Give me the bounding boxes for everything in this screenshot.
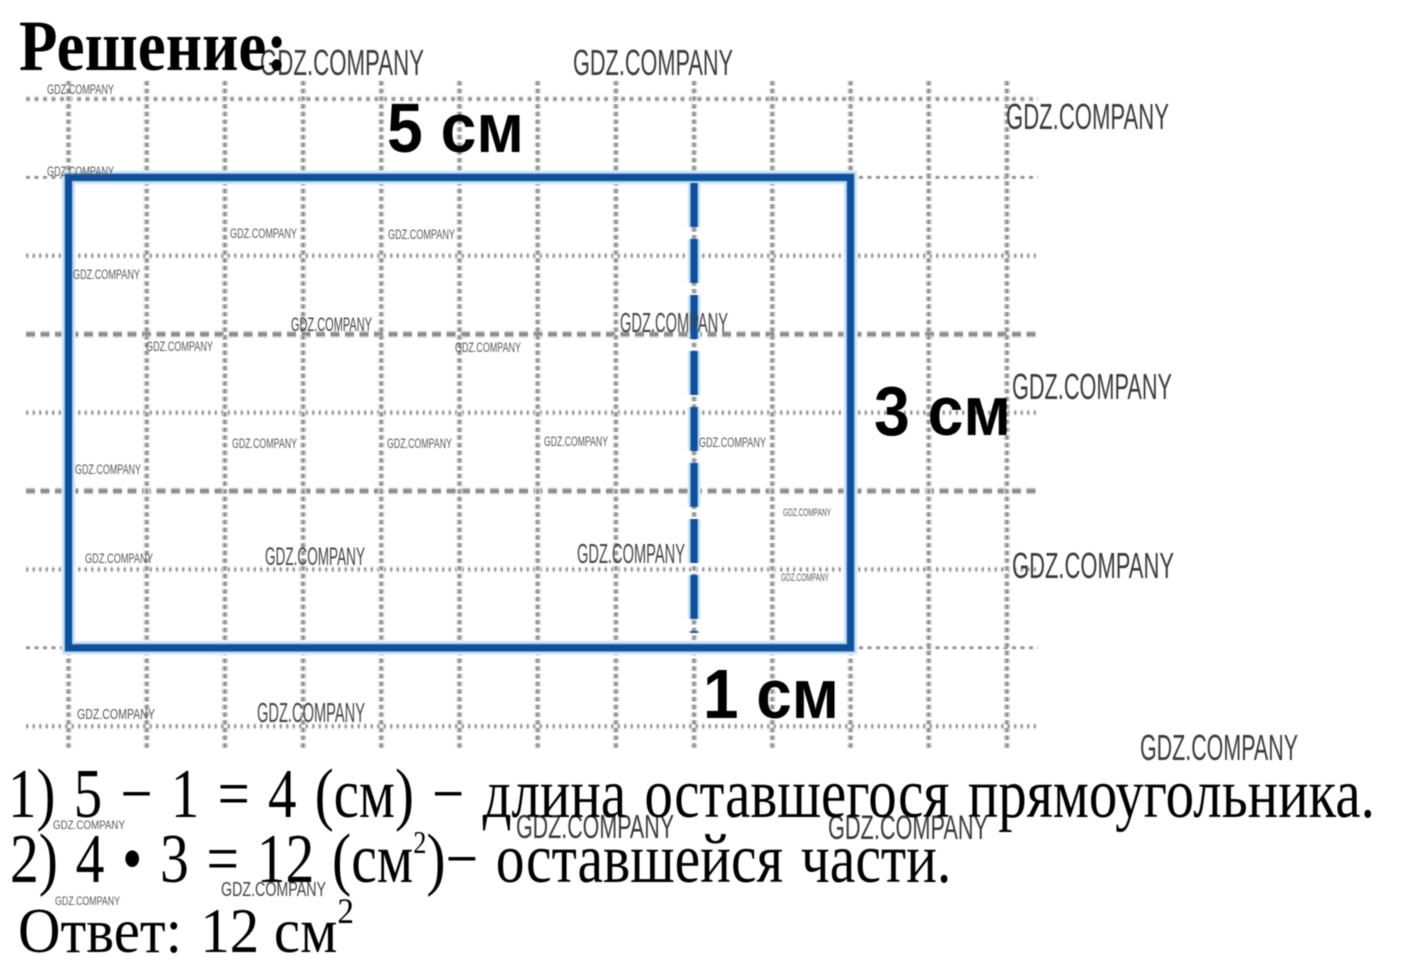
svg-text:GDZ.COMPANY: GDZ.COMPANY [77,706,155,723]
svg-text:GDZ.COMPANY: GDZ.COMPANY [573,42,733,83]
svg-text:GDZ.COMPANY: GDZ.COMPANY [230,226,297,241]
svg-text:GDZ.COMPANY: GDZ.COMPANY [75,462,141,477]
svg-text:GDZ.COMPANY: GDZ.COMPANY [1012,366,1172,407]
svg-text:GDZ.COMPANY: GDZ.COMPANY [783,507,831,519]
svg-text:1 см: 1 см [703,655,839,733]
svg-text:GDZ.COMPANY: GDZ.COMPANY [291,315,372,336]
svg-text:GDZ.COMPANY: GDZ.COMPANY [388,227,455,242]
svg-text:GDZ.COMPANY: GDZ.COMPANY [544,434,608,449]
svg-text:5 см: 5 см [387,89,524,167]
svg-text:GDZ.COMPANY: GDZ.COMPANY [73,267,140,282]
svg-text:GDZ.COMPANY: GDZ.COMPANY [265,543,365,571]
svg-text:GDZ.COMPANY: GDZ.COMPANY [146,339,213,354]
svg-text:GDZ.COMPANY: GDZ.COMPANY [387,436,452,451]
svg-text:GDZ.COMPANY: GDZ.COMPANY [257,697,365,728]
svg-text:GDZ.COMPANY: GDZ.COMPANY [781,572,829,584]
svg-text:GDZ.COMPANY: GDZ.COMPANY [1006,96,1169,137]
svg-text:GDZ.COMPANY: GDZ.COMPANY [699,435,766,450]
svg-text:GDZ.COMPANY: GDZ.COMPANY [85,551,153,566]
svg-text:GDZ.COMPANY: GDZ.COMPANY [232,436,297,451]
svg-text:GDZ.COMPANY: GDZ.COMPANY [1012,545,1174,586]
svg-text:GDZ.COMPANY: GDZ.COMPANY [620,307,728,338]
svg-text:3 см: 3 см [874,372,1011,450]
svg-text:GDZ.COMPANY: GDZ.COMPANY [47,164,114,179]
svg-text:GDZ.COMPANY: GDZ.COMPANY [455,340,521,355]
svg-text:GDZ.COMPANY: GDZ.COMPANY [577,538,685,569]
